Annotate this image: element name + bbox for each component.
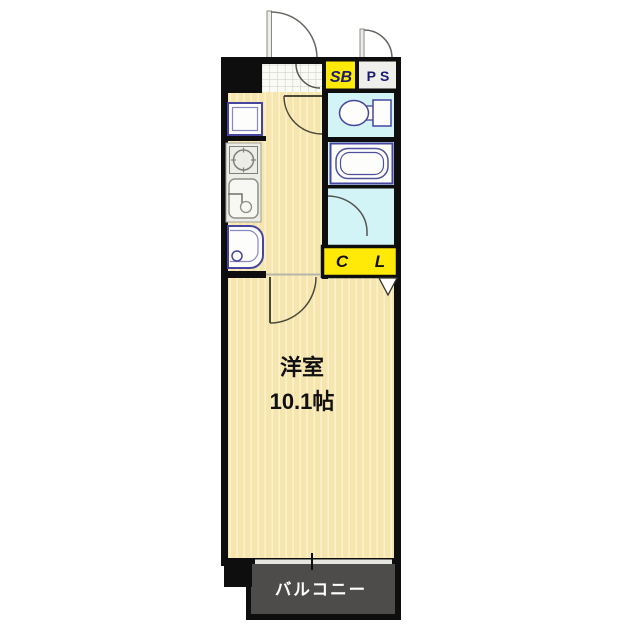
balcony-label: バルコニー — [275, 581, 367, 599]
pipe-space-label: PS — [367, 68, 394, 84]
wall-block-balcony — [224, 563, 252, 587]
refrigerator-icon — [228, 103, 262, 135]
room-name-label: 洋室 — [280, 355, 324, 380]
floor-plan: バルコニー SB PS — [0, 0, 641, 640]
washbasin-icon — [228, 226, 263, 268]
kitchen-stub-wall — [221, 136, 266, 141]
closet-label-c: C — [336, 252, 349, 271]
pipe-space: PS — [358, 60, 398, 90]
room-size-label: 10.1帖 — [270, 389, 335, 414]
shoe-box: SB — [325, 60, 357, 90]
entrance-door-swing-icon — [267, 11, 317, 58]
closet: C L — [323, 247, 398, 277]
kitchen-sink-icon — [228, 179, 258, 218]
service-door-swing-icon — [360, 29, 392, 58]
wall-block-topleft — [221, 57, 262, 93]
closet-label-l: L — [375, 252, 385, 271]
shoe-box-label: SB — [330, 69, 352, 86]
bathtub-icon — [331, 144, 393, 184]
main-room-floor — [228, 274, 396, 562]
floor-plan-page: バルコニー SB PS — [0, 0, 641, 640]
